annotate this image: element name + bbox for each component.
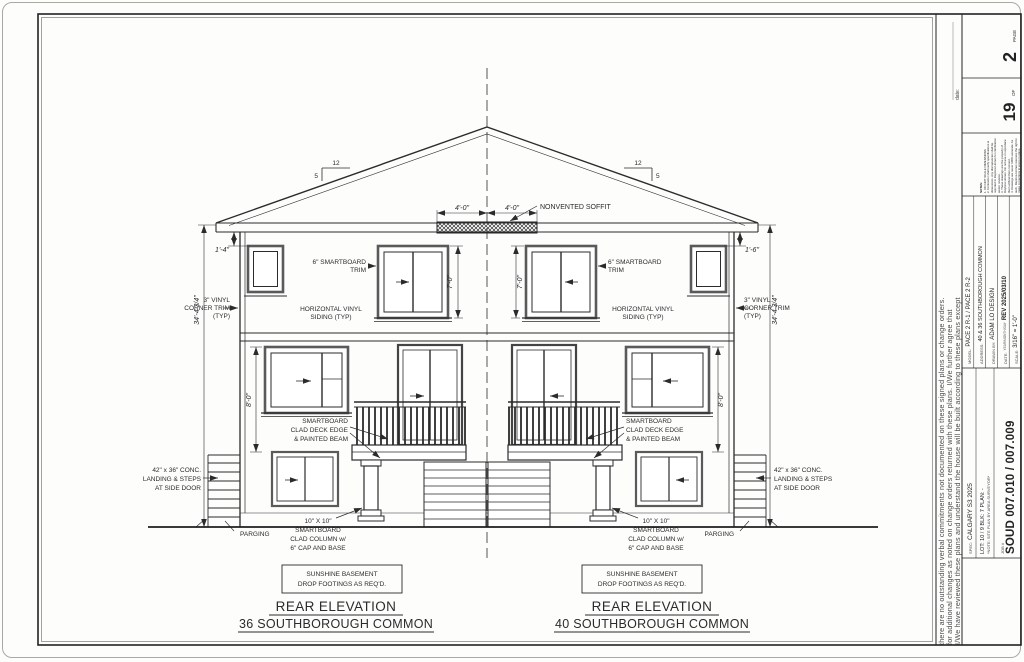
- column-label-right4: 6" CAP AND BASE: [628, 545, 684, 552]
- model-value: PACE 2 R-1 / PACE 2 R-2: [966, 277, 972, 346]
- slope-run-left: 12: [332, 160, 340, 167]
- drawn-by-field: DRAWN BY: ADAM LO DESIGN: [988, 200, 998, 364]
- model-field: MODEL: PACE 2 R-1 / PACE 2 R-2: [964, 200, 974, 364]
- smartboard-trim-label-left2: TRIM: [350, 267, 366, 274]
- column-label-right: 10" X 10": [642, 518, 670, 525]
- note-4: 4. Drawings are never 100% accurate. As …: [1011, 136, 1021, 193]
- spec-label: SPEC:: [968, 542, 973, 554]
- column-label-left2: SMARTBOARD: [295, 527, 341, 534]
- slope-rise-right: 5: [656, 173, 660, 180]
- soffit-dim-right: 4'-0": [505, 205, 519, 212]
- lot-line: LOT: 10 / 9 BLK: 7 PLAN: -: [980, 476, 986, 554]
- drawn-by-value: ADAM LO DESIGN: [990, 288, 996, 340]
- eave-window-dim-left: 1'-4": [215, 247, 229, 254]
- address-field: ADDRESS: 40 & 36 SOUTHBOROUGH COMMON: [976, 200, 986, 364]
- siding-label-left2: SIDING (TYP): [310, 314, 351, 321]
- drawing-sheet: { "sheet": { "disclaimer": { "line1": "I…: [0, 0, 1024, 662]
- soffit-hatch: [437, 222, 537, 233]
- model-label: MODEL:: [967, 349, 972, 364]
- column-label-right3: CLAD COLUMN w/: [628, 536, 684, 543]
- corner-trim-label-left2: CORNER TRIM: [184, 305, 230, 312]
- deck-edge-label-left3: & PAINTED BEAM: [294, 436, 348, 443]
- page-number: 2: [1000, 42, 1020, 72]
- deck-edge-label-right: SMARTBOARD: [626, 418, 672, 425]
- landing-label-left2: LANDING & STEPS: [143, 476, 202, 483]
- spec-field: SPEC: CALGARY S3 2025: [964, 372, 976, 554]
- site-note: *NOTE: SITE PLAN BY AREA SURVEYOR*: [986, 476, 991, 554]
- eave-window-dim-right: 1'-6": [745, 247, 759, 254]
- landing-label-left3: AT SIDE DOOR: [155, 485, 201, 492]
- corner-trim-label-right2: CORNER TRIM: [744, 305, 790, 312]
- window-height-dim-left: 7'-0": [447, 275, 454, 289]
- deck-edge-label-right2: CLAD DECK EDGE: [626, 427, 684, 434]
- note-2: 2. Contractor shall verify specification…: [987, 136, 1001, 193]
- elevation-drawing: 12 5 12 5 4'-0" 4'-0" NONVENTED SOFFIT 7…: [0, 0, 1024, 662]
- landing-label-right: 42" x 36" CONC.: [774, 467, 823, 474]
- column-label-left3: CLAD COLUMN w/: [290, 536, 346, 543]
- soffit-dim-left: 4'-0": [455, 205, 469, 212]
- lot-field: LOT: 10 / 9 BLK: 7 PLAN: - *NOTE: SITE P…: [977, 372, 993, 554]
- elevation-title-left: REAR ELEVATION: [276, 599, 397, 614]
- mirrored-unit: [488, 225, 778, 531]
- parging-label-left: PARGING: [240, 531, 270, 538]
- smartboard-trim-label-right2: TRIM: [608, 267, 624, 274]
- date-field: DATE: YEAR/MONTH/DAY REV 2025/03/10: [1000, 200, 1010, 364]
- elevation-subtitle-right: 40 SOUTHBOROUGH COMMON: [555, 617, 749, 631]
- basement-note-right-2: DROP FOOTINGS AS REQ'D.: [598, 581, 686, 588]
- column-label-right2: SMARTBOARD: [633, 527, 679, 534]
- storey-dim-left: 8'-0": [246, 393, 253, 407]
- corner-trim-label-left3: (TYP): [213, 313, 230, 320]
- basement-note-box-right: [582, 565, 702, 593]
- sheet-frame: [38, 14, 1021, 645]
- deck-edge-label-left2: CLAD DECK EDGE: [291, 427, 349, 434]
- notes-block: NOTES: 1. DO NOT SCALE DIMENSIONS 2. Con…: [983, 136, 1019, 193]
- storey-dim-right: 8'-0": [718, 393, 725, 407]
- landing-label-left: 42" x 36" CONC.: [152, 467, 201, 474]
- date-label: DATE:: [1003, 353, 1008, 364]
- column-label-left4: 6" CAP AND BASE: [290, 545, 346, 552]
- elevation-title-right: REAR ELEVATION: [592, 599, 713, 614]
- landing-label-right2: LANDING & STEPS: [774, 476, 833, 483]
- basement-note-right-1: SUNSHINE BASEMENT: [606, 571, 677, 578]
- corner-trim-label-left: 3" VINYL: [203, 297, 230, 304]
- smartboard-trim-label-right: 6" SMARTBOARD: [608, 259, 662, 266]
- address-value: 40 & 36 SOUTHBOROUGH COMMON: [978, 246, 984, 341]
- page-total: 19: [999, 94, 1021, 130]
- disclaimer-line-1: I/We have reviewed these plans and under…: [953, 14, 962, 645]
- signature-date-label: date:: [954, 24, 962, 100]
- address-label: ADDRESS:: [979, 344, 984, 364]
- scale-label: SCALE:: [1014, 350, 1019, 364]
- page-label: PAGE: [1009, 20, 1019, 42]
- slope-rise-left: 5: [314, 173, 318, 180]
- job-field: JOB # SOUD 007.010 / 007.009: [996, 372, 1020, 554]
- siding-label-left: HORIZONTAL VINYL: [300, 306, 362, 313]
- slope-run-right: 12: [634, 160, 642, 167]
- deck-edge-label-right3: & PAINTED BEAM: [626, 436, 680, 443]
- date-value: REV 2025/03/10: [1002, 276, 1008, 320]
- basement-note-box-left: [282, 565, 402, 593]
- nonvented-soffit-label: NONVENTED SOFFIT: [540, 204, 612, 211]
- drawn-by-label: DRAWN BY:: [991, 342, 996, 364]
- parging-label-right: PARGING: [705, 531, 735, 538]
- deck-edge-label-left: SMARTBOARD: [302, 418, 348, 425]
- scale-value: 3/16" = 1'-0": [1013, 315, 1019, 348]
- date-format: YEAR/MONTH/DAY: [1003, 322, 1007, 350]
- spec-value: CALGARY S3 2025: [967, 483, 974, 540]
- basement-note-left-1: SUNSHINE BASEMENT: [306, 571, 377, 578]
- corner-trim-label-right3: (TYP): [744, 313, 761, 320]
- siding-label-right: HORIZONTAL VINYL: [612, 306, 674, 313]
- corner-trim-label-right: 3" VINYL: [744, 297, 771, 304]
- elevation-subtitle-left: 36 SOUTHBOROUGH COMMON: [239, 617, 433, 631]
- job-number: SOUD 007.010 / 007.009: [1005, 420, 1017, 554]
- column-label-left: 10" X 10": [304, 518, 332, 525]
- window-height-dim-right: 7'-0": [517, 275, 524, 289]
- scale-field: SCALE: 3/16" = 1'-0": [1011, 200, 1021, 364]
- landing-label-right3: AT SIDE DOOR: [774, 485, 820, 492]
- basement-note-left-2: DROP FOOTINGS AS REQ'D.: [298, 581, 386, 588]
- smartboard-trim-label-left: 6" SMARTBOARD: [313, 259, 367, 266]
- siding-label-right2: SIDING (TYP): [622, 314, 663, 321]
